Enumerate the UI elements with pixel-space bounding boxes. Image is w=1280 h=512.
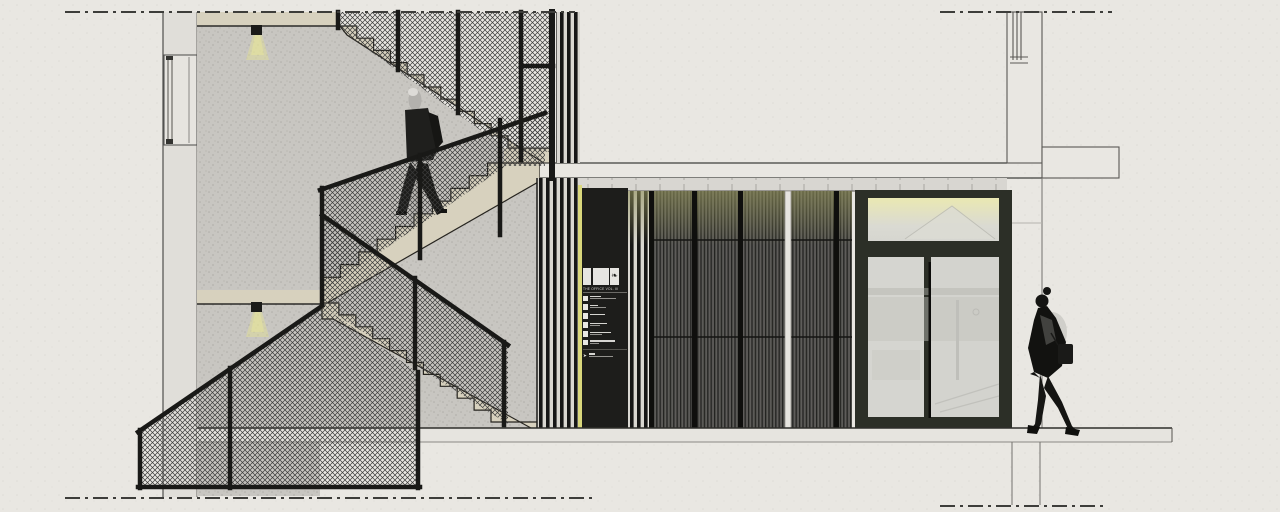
facade-mullion: [738, 191, 743, 428]
signage-content: ❧ THE OFFICE VOL. III ➤: [583, 268, 627, 358]
directory-entry-icon: [583, 313, 588, 319]
directory-entry-text: [590, 340, 628, 344]
directory-entry-icon: [583, 304, 588, 310]
directory-entry-text: [589, 353, 627, 358]
facade-slat-panels: [628, 191, 852, 428]
projecting-beam: [1042, 147, 1119, 178]
directory-footer-row: ➤: [583, 349, 627, 358]
directory-footer: ➤: [583, 349, 627, 358]
signage-title: THE OFFICE VOL. III: [583, 287, 627, 291]
directory-entry-icon: [583, 296, 588, 302]
facade-mullion: [649, 191, 654, 428]
directory-entry-icon: [583, 340, 588, 346]
entrance-door: [855, 190, 1012, 428]
facade-mullion: [692, 191, 697, 428]
right-pier: [1007, 12, 1042, 163]
lintel-band: [577, 178, 1007, 191]
directory-entry-row: [583, 331, 627, 337]
signage-divider: [583, 292, 627, 293]
yellow-accent-strip: [578, 185, 582, 428]
roof-slab: [540, 163, 1007, 178]
architectural-section-drawing: ❧ THE OFFICE VOL. III ➤: [0, 0, 1280, 512]
directory-entry-text: [590, 331, 628, 335]
door-handle: [929, 262, 932, 418]
directory-entry-text: [590, 322, 628, 326]
directory-entry-icon: [583, 322, 588, 328]
exit-arrow-icon: ➤: [583, 353, 587, 358]
facade-mullion: [834, 191, 839, 428]
logo-block: [583, 268, 591, 285]
directory-entry-row: [583, 322, 627, 328]
directory-entry-row: [583, 304, 627, 310]
handbag: [1058, 344, 1073, 364]
directory-entry-icon: [583, 331, 588, 337]
logo-leaf-icon: ❧: [610, 268, 619, 285]
directory-entry-row: [583, 340, 627, 346]
facade-white-strip: [785, 191, 791, 428]
left-wall-window: [164, 55, 197, 145]
section-drawing-svg: [0, 0, 1280, 512]
directory-entry-text: [590, 304, 628, 308]
directory-rows: [583, 296, 627, 346]
signage-logo: ❧: [583, 268, 627, 285]
directory-entry-row: [583, 313, 627, 319]
directory-entry-text: [590, 296, 628, 300]
logo-block: [593, 268, 609, 285]
directory-entry-text: [590, 313, 628, 316]
directory-entry-row: [583, 296, 627, 302]
